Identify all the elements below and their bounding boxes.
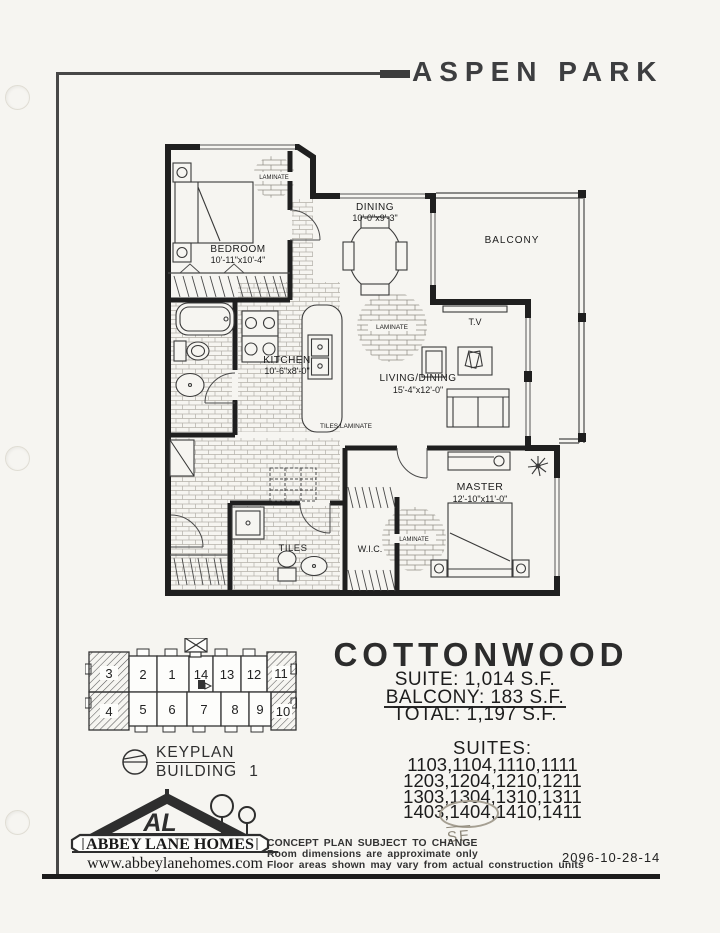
punch-hole-top (5, 85, 30, 110)
tv-label: T.V (468, 317, 481, 327)
svg-text:11: 11 (274, 666, 288, 681)
tiles-label: TILES (279, 543, 308, 554)
svg-text:6: 6 (168, 702, 175, 717)
disclaimer-line: Room dimensions are approximate only (267, 849, 584, 860)
laminate-label-entry: LAMINATE (259, 175, 289, 181)
keyplan-building-label: BUILDING (156, 763, 237, 780)
master-dresser (448, 452, 510, 470)
svg-text:7: 7 (200, 702, 207, 717)
svg-text:9: 9 (256, 702, 263, 717)
scanned-floor-plan-page: ASPEN PARK (0, 0, 720, 933)
dining-label: DINING (356, 202, 394, 213)
bathtub (176, 303, 234, 335)
laminate-label-living: LAMINATE (376, 324, 409, 331)
keyplan-building-number: 1 (249, 763, 259, 780)
area-summary: SUITE: 1,014 S.F. BALCONY: 183 S.F. TOTA… (345, 671, 605, 724)
sink-second (301, 557, 327, 576)
company-website: www.abbeylanehomes.com (70, 855, 280, 873)
laminate-label-master: LAMINATE (399, 537, 429, 543)
frame-top-border (56, 72, 402, 75)
wic-label: W.I.C. (358, 544, 383, 554)
dining-dims: 10'-0"x9'-3" (352, 213, 397, 223)
svg-text:12: 12 (247, 667, 261, 682)
disclaimer-line: Floor areas shown may vary from actual c… (267, 860, 584, 871)
master-dims: 12'-10"x11'-0" (453, 494, 508, 504)
svg-text:14: 14 (194, 667, 208, 682)
company-name: ABBEY LANE HOMES (86, 836, 254, 853)
project-title: ASPEN PARK (412, 56, 664, 88)
keyplan-units (89, 652, 296, 730)
punch-hole-bottom (5, 810, 30, 835)
svg-text:8: 8 (231, 702, 238, 717)
document-number: 2096-10-28-14 (562, 850, 660, 865)
shower (232, 507, 264, 539)
balcony-label: BALCONY (485, 235, 540, 246)
total-area-label: TOTAL: (393, 704, 461, 725)
svg-text:1: 1 (168, 667, 175, 682)
plant (528, 456, 548, 476)
living-dims: 15'-4"x12'-0" (393, 385, 443, 395)
bottom-rule (42, 874, 660, 879)
title-dash (380, 70, 410, 78)
utility-closet (170, 440, 194, 476)
total-area-value: 1,197 S.F. (466, 704, 557, 725)
disclaimer-line: CONCEPT PLAN SUBJECT TO CHANGE (267, 838, 584, 849)
keyplan-diagram: 3 2 1 14 13 12 11 4 5 6 7 8 9 10 (85, 638, 297, 743)
svg-text:4: 4 (105, 704, 112, 719)
toilet-main (174, 341, 209, 361)
svg-text:2: 2 (139, 667, 146, 682)
svg-text:5: 5 (139, 702, 146, 717)
punch-hole-middle (5, 446, 30, 471)
company-logo: AL ABBEY LANE HOMES (70, 789, 280, 853)
tiles-laminate-label: TILES LAMINATE (320, 423, 373, 430)
keyplan-title: KEYPLAN (156, 744, 235, 763)
disclaimer-block: CONCEPT PLAN SUBJECT TO CHANGE Room dime… (267, 838, 584, 872)
keyplan-north-icon (120, 747, 150, 777)
dining-table (343, 217, 407, 295)
bedroom-dims: 10'-11"x10'-4" (211, 255, 266, 265)
keyplan-entry-marker (185, 638, 207, 657)
floorplan-drawing: BEDROOM 10'-11"x10'-4" DINING 10'-0"x9'-… (150, 135, 610, 605)
sink-main (176, 374, 204, 397)
bedroom-label: BEDROOM (210, 244, 265, 255)
svg-text:13: 13 (220, 667, 234, 682)
master-label: MASTER (457, 481, 504, 493)
sofa (447, 389, 509, 427)
logo-monogram: AL (142, 809, 176, 837)
kitchen-label: KITCHEN (263, 355, 310, 366)
tv-stand (443, 306, 507, 312)
living-label: LIVING/DINING (379, 373, 456, 384)
svg-text:3: 3 (105, 666, 112, 681)
frame-left-border (56, 72, 59, 877)
svg-text:10: 10 (276, 704, 290, 719)
kitchen-dims: 10'-6"x8'-0" (264, 366, 309, 376)
keyplan-caption: KEYPLAN BUILDING1 (156, 744, 259, 780)
side-table (458, 347, 492, 375)
